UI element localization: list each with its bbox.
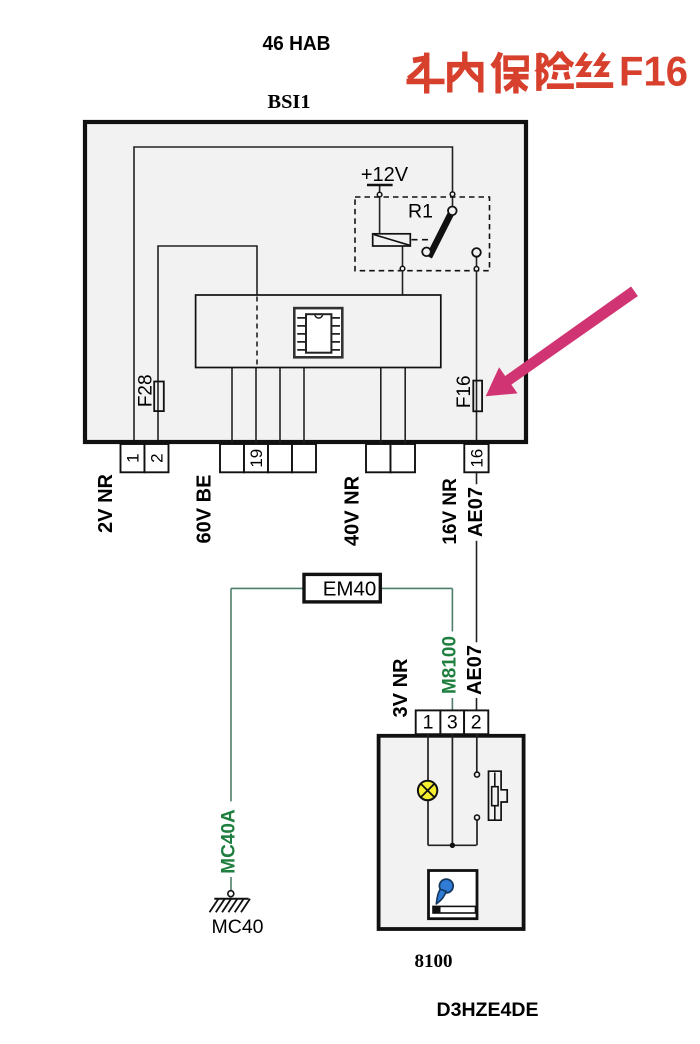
svg-text:AE07: AE07 <box>465 487 487 537</box>
svg-text:2V NR: 2V NR <box>95 473 117 532</box>
svg-text:R1: R1 <box>408 201 433 223</box>
svg-text:2: 2 <box>471 712 482 734</box>
svg-text:F28: F28 <box>136 374 157 407</box>
svg-text:2: 2 <box>148 453 167 462</box>
svg-text:MC40A: MC40A <box>219 809 240 874</box>
svg-text:60V BE: 60V BE <box>193 475 215 544</box>
svg-text:M8100: M8100 <box>439 636 460 694</box>
svg-text:3: 3 <box>447 712 458 734</box>
svg-text:AE07: AE07 <box>464 645 486 695</box>
svg-text:MC40: MC40 <box>212 916 264 938</box>
svg-text:EM40: EM40 <box>323 578 377 601</box>
svg-text:1: 1 <box>423 712 434 734</box>
svg-text:16: 16 <box>467 449 486 468</box>
svg-text:19: 19 <box>247 449 266 468</box>
svg-text:D3HZE4DE: D3HZE4DE <box>437 1000 539 1021</box>
svg-text:3V NR: 3V NR <box>390 658 412 717</box>
svg-text:1: 1 <box>124 453 143 462</box>
svg-text:46 HAB: 46 HAB <box>263 33 331 55</box>
svg-text:16V NR: 16V NR <box>440 478 461 545</box>
svg-text:+12V: +12V <box>361 164 409 186</box>
svg-text:F16: F16 <box>454 375 475 408</box>
svg-text:8100: 8100 <box>415 951 453 972</box>
svg-text:F16: F16 <box>619 48 688 95</box>
svg-text:BSI1: BSI1 <box>268 91 311 113</box>
svg-text:40V NR: 40V NR <box>342 475 364 546</box>
